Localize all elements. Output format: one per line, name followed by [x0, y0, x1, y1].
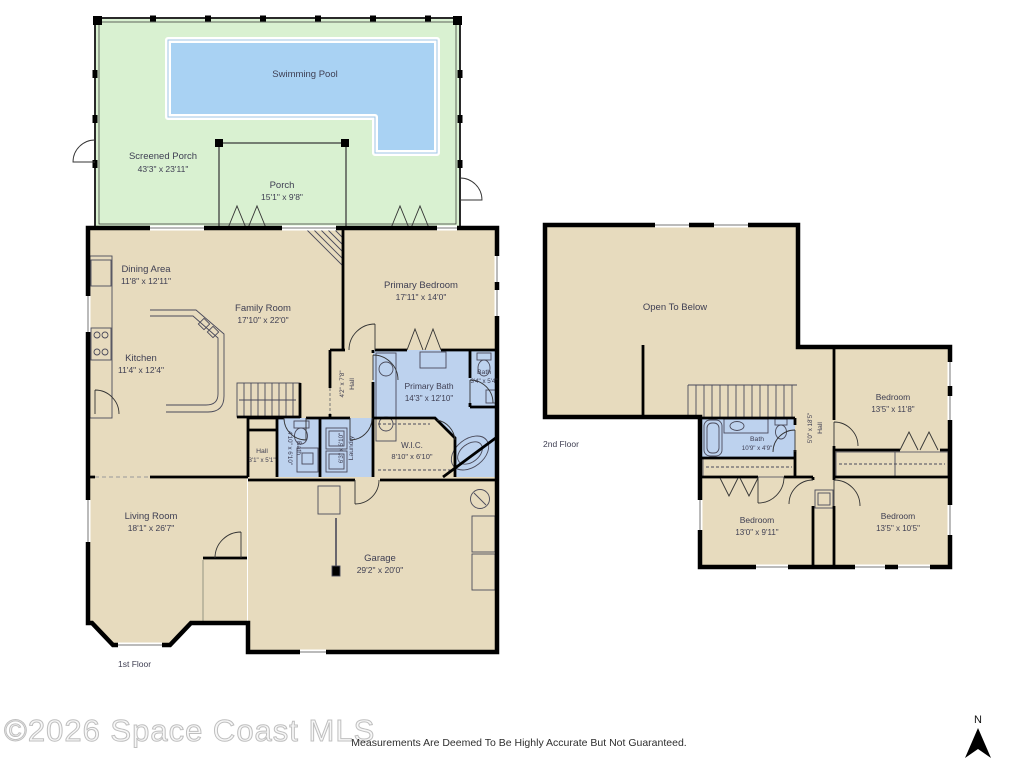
room-dims-living-room: 18'1" x 26'7": [128, 523, 175, 533]
room-label-family-room: Family Room: [235, 303, 291, 314]
room-label-primary-bedroom: Primary Bedroom: [384, 280, 458, 291]
room-label-hall-small: Hall: [256, 448, 268, 455]
room-dims-toilet-bath: 3'4" x 5'4": [470, 378, 497, 385]
room-label-toilet-bath: Bath: [477, 369, 491, 376]
room-dims-family-room: 17'10" x 22'0": [237, 315, 288, 325]
room-label-garage: Garage: [364, 553, 396, 564]
compass-label: N: [974, 714, 982, 726]
room-label-primary-bath: Primary Bath: [404, 381, 453, 391]
room-label-swimming-pool: Swimming Pool: [272, 69, 337, 80]
room-dims-bedroom-bl: 13'0" x 9'11": [735, 528, 778, 537]
room-label-dining-area: Dining Area: [121, 264, 171, 275]
north-arrow-icon: [965, 728, 991, 758]
room-label-bath2: Bath: [750, 436, 764, 443]
room-dims-garage: 29'2" x 20'0": [357, 565, 404, 575]
room-label-bedroom-br: Bedroom: [881, 511, 916, 521]
room-label-bath1: Bath: [295, 441, 302, 455]
disclaimer-text: Measurements Are Deemed To Be Highly Acc…: [351, 737, 686, 749]
room-dims-dining-area: 11'8" x 12'11": [121, 276, 171, 286]
room-dims-porch: 15'1" x 9'8": [261, 192, 303, 202]
room-dims-bath2: 10'9" x 4'9": [742, 445, 773, 452]
room-dims-bedroom-br: 13'5" x 10'5": [876, 524, 920, 533]
room-label-wic: W.I.C.: [401, 441, 423, 450]
floor-plan-canvas: Swimming Pool Screened Porch 43'3" x 23'…: [0, 0, 1024, 768]
room-dims-bedroom-right: 13'5" x 11'8": [871, 405, 914, 414]
room-label-porch: Porch: [270, 180, 295, 191]
room-label-laundry: Laundry: [348, 435, 355, 460]
compass: N: [965, 714, 991, 758]
room-dims-primary-bedroom: 17'11" x 14'0": [396, 292, 447, 302]
room-dims-kitchen: 11'4" x 12'4": [118, 365, 164, 375]
floor1-label: 1st Floor: [118, 659, 151, 669]
room-label-hall-upper: Hall: [349, 378, 356, 390]
room-dims-bath1: 4'10" x 6'10": [286, 431, 293, 465]
room-dims-laundry: 6'3" x 6'10": [338, 433, 345, 464]
room-label-open-to-below: Open To Below: [643, 302, 707, 313]
room-dims-hall2: 5'0" x 18'5": [807, 413, 814, 444]
room-label-bedroom-bl: Bedroom: [740, 515, 775, 525]
floor-plan-page: Swimming Pool Screened Porch 43'3" x 23'…: [0, 0, 1024, 768]
room-dims-wic: 8'10" x 6'10": [391, 452, 432, 461]
floor2-label: 2nd Floor: [543, 439, 579, 449]
room-label-kitchen: Kitchen: [125, 353, 157, 364]
room-label-screened-porch: Screened Porch: [129, 151, 197, 162]
room-dims-hall-upper: 4'2" x 7'8": [339, 370, 346, 397]
room-label-living-room: Living Room: [125, 511, 178, 522]
room-label-hall2: Hall: [817, 422, 824, 434]
room-dims-screened-porch: 43'3" x 23'11": [138, 164, 189, 174]
room-dims-hall-small: 3'1" x 5'1": [248, 457, 275, 464]
watermark: ©2026 Space Coast MLS: [4, 713, 375, 748]
room-label-bedroom-right: Bedroom: [876, 392, 911, 402]
room-dims-primary-bath: 14'3" x 12'10": [405, 394, 453, 403]
